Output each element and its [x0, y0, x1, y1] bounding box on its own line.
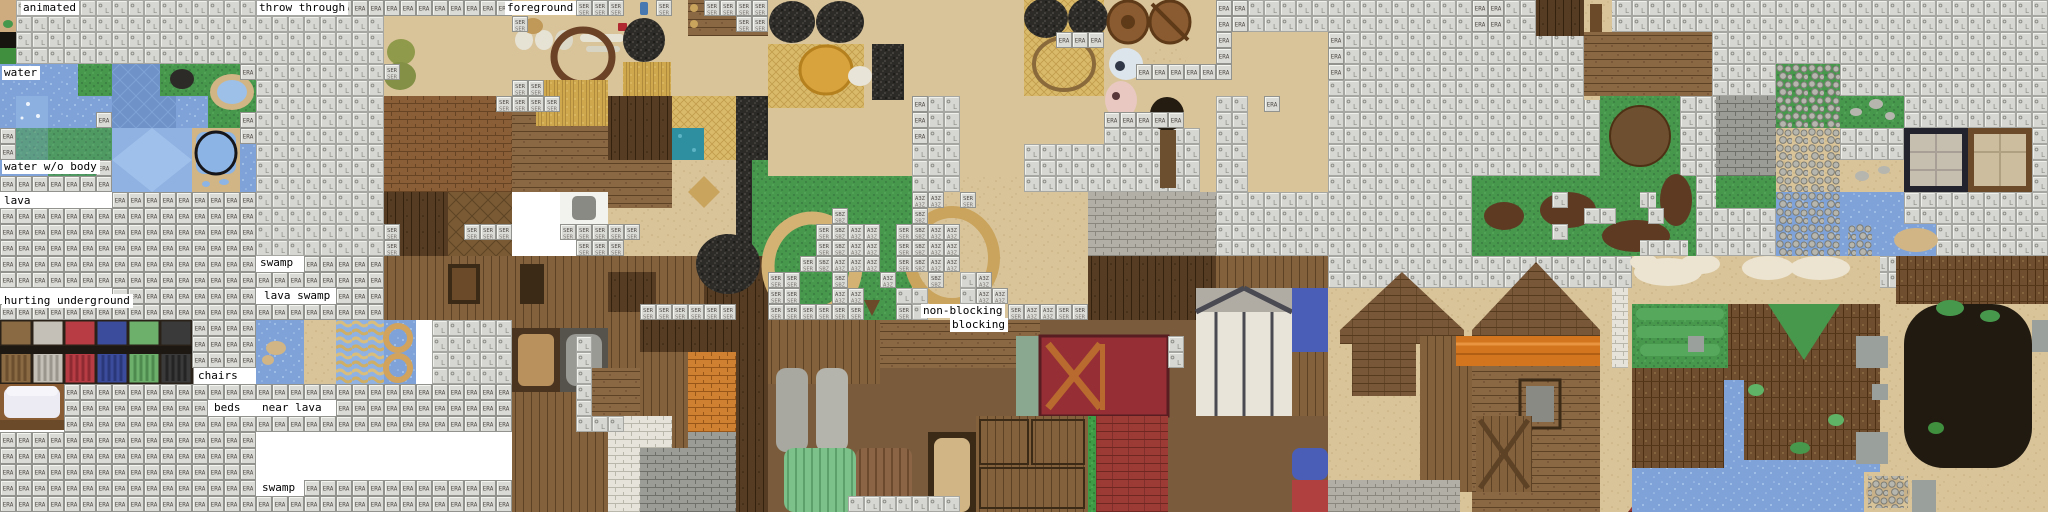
empty-tile-area[interactable]	[1344, 0, 1472, 192]
art-blob	[1680, 254, 1720, 274]
empty-tile-area[interactable]	[1552, 192, 1568, 208]
art-rect	[1632, 368, 1728, 468]
art-rect	[0, 32, 16, 48]
art-blob	[202, 181, 210, 187]
art-blob	[816, 1, 864, 43]
art-rect	[520, 264, 544, 304]
tile-badge-ERA[interactable]	[192, 320, 256, 368]
art-blob	[1742, 256, 1794, 280]
art-blob	[696, 234, 760, 294]
label-chairs: chairs	[196, 369, 241, 383]
chair-seat	[96, 352, 128, 384]
chair-seat	[64, 352, 96, 384]
label-swamp-lower: swamp	[260, 481, 298, 495]
tile-badge-A3Z[interactable]	[976, 288, 1008, 304]
tile-badge-ERA[interactable]	[1184, 64, 1216, 80]
tile-badge-ERA[interactable]	[912, 96, 928, 144]
tile-badge-ERA[interactable]	[336, 288, 384, 304]
art-rect	[1536, 0, 1584, 36]
tile-badge-SER[interactable]	[656, 0, 672, 16]
tile-badge-SER[interactable]	[736, 0, 768, 32]
label-blocking: blocking	[950, 318, 1008, 332]
label-water: water	[2, 66, 40, 80]
art-rect	[78, 64, 112, 96]
tile-badge-ERA[interactable]	[112, 192, 256, 208]
art-blob	[692, 148, 696, 152]
art-rect	[1868, 476, 1908, 508]
tile-badge-SBZ[interactable]	[912, 224, 928, 272]
tile-badge-ERA[interactable]	[96, 112, 112, 128]
chair-seat	[160, 352, 192, 384]
empty-tile-area[interactable]	[256, 64, 384, 256]
art-rect	[304, 320, 336, 384]
tile-badge-SER[interactable]	[560, 224, 640, 240]
tile-badge-ERA[interactable]	[1472, 0, 1504, 32]
tile-badge-ERA[interactable]	[256, 272, 384, 288]
art-blob	[1748, 384, 1764, 396]
tile-badge-ERA[interactable]	[336, 400, 384, 416]
art-blob	[690, 20, 698, 28]
art-blob	[1936, 300, 1964, 316]
art-rect	[1872, 384, 1888, 400]
art-rect	[1904, 304, 2032, 468]
art-rect	[736, 320, 768, 512]
art-blob	[678, 134, 682, 138]
art-blob	[1869, 99, 1883, 109]
art-blob	[21, 117, 24, 120]
art-blob	[1894, 228, 1938, 252]
art-rect	[704, 96, 736, 160]
tile-badge-SER[interactable]	[768, 304, 864, 320]
tile-badge-ERA[interactable]	[0, 176, 112, 192]
tile-badge-SER[interactable]	[896, 304, 912, 320]
tile-badge-A3Z[interactable]	[944, 256, 960, 272]
art-rect	[1456, 336, 1600, 366]
art-blob	[1630, 254, 1658, 270]
art-rect	[1896, 256, 2048, 304]
label-hurting-underground: hurting underground	[2, 294, 133, 308]
tile-badge-ERA[interactable]	[304, 256, 384, 272]
art-rect	[1292, 288, 1328, 352]
art-blob	[848, 66, 872, 86]
tile-badge-ERA[interactable]	[384, 480, 512, 512]
tile-badge-ERA[interactable]	[240, 64, 256, 80]
art-rect	[1016, 336, 1040, 416]
chair-seat	[0, 352, 32, 384]
tile-badge-SBZ[interactable]	[832, 272, 848, 288]
tile-badge-ERA[interactable]	[64, 384, 256, 400]
empty-tile-area[interactable]	[1648, 208, 1664, 224]
label-beds: beds	[212, 401, 244, 415]
empty-tile-area[interactable]	[432, 320, 512, 384]
tile-badge-SER[interactable]	[464, 224, 512, 240]
tile-badge-ERA[interactable]	[304, 480, 384, 496]
tile-badge-A3Z[interactable]	[832, 288, 864, 304]
empty-tile-area[interactable]	[1696, 240, 1728, 256]
tile-badge-ERA[interactable]	[0, 208, 256, 288]
chair-back	[96, 320, 128, 346]
tileset-sheet[interactable]: L	[0, 0, 2048, 512]
chair-back	[160, 320, 192, 346]
art-rect	[1856, 432, 1888, 464]
empty-tile-area[interactable]	[16, 16, 384, 64]
art-rect	[623, 62, 671, 96]
tile-badge-SER[interactable]	[768, 288, 800, 304]
art-rect	[1292, 352, 1328, 416]
tile-badge-A3Z[interactable]	[848, 224, 880, 272]
label-throw-through: throw through	[257, 1, 348, 15]
tile-badge-SER[interactable]	[384, 224, 400, 256]
art-rect	[1196, 288, 1292, 312]
art-blob	[170, 69, 194, 89]
tile-badge-A3Z[interactable]	[832, 256, 848, 272]
label-water-wo-body: water w/o body	[2, 160, 100, 174]
art-blob	[1828, 414, 1844, 426]
tile-badge-SER[interactable]	[576, 0, 592, 16]
tile-badge-SER[interactable]	[576, 240, 624, 256]
art-blob	[26, 102, 30, 106]
art-blob	[266, 341, 286, 355]
art-blob	[36, 114, 40, 118]
tile-badge-ERA[interactable]	[1264, 96, 1280, 112]
tile-badge-ERA[interactable]	[256, 384, 384, 400]
tile-badge-ERA[interactable]	[1328, 32, 1344, 80]
tile-badge-ERA[interactable]	[1056, 32, 1104, 48]
tile-badge-SBZ[interactable]	[912, 208, 928, 224]
tile-badge-SER[interactable]	[1056, 304, 1088, 320]
art-blob	[769, 1, 815, 43]
art-blob	[387, 39, 415, 65]
empty-tile-area[interactable]	[1328, 256, 1536, 288]
empty-tile-area[interactable]	[1024, 144, 1104, 192]
art-rect	[1840, 160, 1904, 192]
art-blob	[1855, 171, 1869, 181]
tile-badge-SER[interactable]	[640, 304, 736, 320]
art-blob	[1121, 15, 1135, 29]
tile-badge-ERA[interactable]	[0, 432, 256, 512]
art-blob	[3, 20, 13, 28]
art-rect	[672, 96, 704, 128]
art-rect	[1584, 32, 1712, 96]
art-rect	[688, 352, 736, 432]
tile-badge-SBZ[interactable]	[816, 256, 832, 272]
art-rect	[2032, 320, 2048, 352]
art-rect	[1612, 288, 1628, 368]
art-rect	[1292, 480, 1328, 512]
tile-badge-ERA[interactable]	[384, 384, 512, 432]
art-rect	[608, 160, 672, 208]
empty-tile-area[interactable]	[1584, 208, 1616, 224]
art-rect	[1292, 448, 1328, 480]
tile-badge-ERA[interactable]	[112, 288, 256, 304]
tile-badge-ERA[interactable]	[1216, 32, 1232, 80]
label-animated: animated	[21, 1, 79, 15]
art-rect	[1640, 344, 1720, 356]
art-rect	[816, 368, 848, 452]
tile-badge-SER[interactable]	[960, 192, 976, 208]
art-rect	[1352, 344, 1416, 396]
tile-badge-SER[interactable]	[896, 224, 912, 272]
label-non-blocking: non-blocking	[921, 304, 1005, 318]
tile-badge-ERA[interactable]	[1136, 64, 1184, 80]
art-blob	[1980, 310, 2000, 322]
art-rect	[672, 128, 704, 160]
tile-badge-SER[interactable]	[384, 64, 400, 80]
chair-back	[64, 320, 96, 346]
tile-badge-ERA[interactable]	[336, 0, 512, 16]
chair-back	[0, 320, 32, 346]
chair-back	[32, 320, 64, 346]
art-rect	[1636, 326, 1724, 338]
art-rect	[1856, 336, 1888, 368]
art-blob	[1112, 92, 1120, 100]
art-rect	[192, 176, 240, 192]
art-rect	[784, 448, 856, 512]
art-rect	[872, 44, 904, 100]
art-rect	[1728, 460, 1880, 512]
art-rect	[0, 0, 16, 16]
empty-tile-area[interactable]	[1216, 96, 1248, 192]
empty-tile-area[interactable]	[576, 416, 624, 432]
tile-badge-ERA[interactable]	[256, 304, 384, 320]
art-blob	[262, 355, 274, 365]
tile-badge-A3Z[interactable]	[976, 272, 992, 288]
art-rect	[1632, 468, 1728, 512]
tile-badge-ERA[interactable]	[256, 416, 384, 432]
art-blob	[623, 18, 665, 62]
art-blob	[1115, 61, 1125, 71]
empty-tile-area[interactable]	[1168, 336, 1184, 368]
art-blob	[219, 179, 229, 185]
art-rect	[1160, 130, 1176, 188]
label-lava: lava	[2, 194, 34, 208]
tileset-art: L	[0, 0, 2048, 512]
art-rect	[0, 346, 192, 354]
tile-badge-ERA[interactable]	[64, 400, 208, 416]
tile-badge-ERA[interactable]	[240, 128, 256, 144]
art-rect	[16, 96, 48, 128]
tile-badge-SBZ[interactable]	[928, 272, 944, 288]
empty-tile-area[interactable]	[1640, 240, 1688, 256]
tile-badge-ERA[interactable]	[64, 416, 256, 432]
art-rect	[776, 368, 808, 452]
tile-badge-A3Z[interactable]	[912, 192, 944, 208]
art-blob	[1484, 202, 1524, 230]
art-blob	[690, 4, 698, 12]
empty-tile-area[interactable]	[1472, 32, 1536, 192]
art-rect	[1636, 308, 1724, 320]
art-rect	[1776, 64, 1840, 128]
art-rect	[1716, 176, 1776, 208]
art-blob	[1885, 112, 1895, 120]
label-near-lava: near lava	[260, 401, 325, 415]
art-rect	[1776, 128, 1840, 192]
tile-badge-ERA[interactable]	[1216, 0, 1248, 32]
tile-badge-SER[interactable]	[1008, 304, 1024, 320]
art-rect	[1688, 336, 1704, 352]
tile-badge-SER[interactable]	[768, 272, 784, 288]
empty-tile-area[interactable]	[1552, 224, 1568, 240]
art-rect	[752, 160, 768, 256]
art-rect	[640, 2, 648, 15]
tile-badge-ERA[interactable]	[256, 496, 384, 512]
art-rect	[1096, 416, 1168, 512]
label-lava-swamp: lava swamp	[262, 289, 333, 303]
tile-badge-SER[interactable]	[512, 80, 544, 96]
label-swamp-upper: swamp	[258, 256, 296, 270]
tile-badge-ERA[interactable]	[240, 112, 256, 128]
art-rect	[336, 320, 384, 384]
art-blob	[1850, 108, 1862, 116]
art-blob	[1790, 256, 1850, 280]
chair-back	[128, 320, 160, 346]
art-blob	[1878, 166, 1890, 174]
art-rect	[608, 96, 672, 160]
art-rect	[0, 48, 16, 64]
tile-badge-A3Z[interactable]	[880, 272, 896, 288]
art-rect	[1328, 480, 1460, 512]
art-rect	[1216, 256, 1328, 288]
art-rect	[1100, 344, 1105, 410]
tile-badge-SER[interactable]	[592, 0, 624, 16]
art-rect	[1088, 192, 1216, 256]
tile-badge-SER[interactable]	[512, 16, 528, 32]
chair-seat	[32, 352, 64, 384]
chair-seat	[128, 352, 160, 384]
art-rect	[688, 432, 736, 512]
tile-badge-ERA[interactable]	[0, 128, 16, 160]
art-blob	[1928, 422, 1944, 434]
art-rect	[518, 334, 554, 386]
empty-tile-area[interactable]	[576, 336, 592, 416]
tile-badge-ERA[interactable]	[1104, 112, 1184, 128]
label-foreground: foreground	[505, 1, 576, 15]
art-blob	[217, 80, 247, 104]
art-blob	[1790, 442, 1810, 454]
tile-badge-SER[interactable]	[800, 256, 816, 272]
tile-badge-SER[interactable]	[496, 96, 560, 112]
art-rect	[16, 128, 48, 160]
empty-tile-area[interactable]	[1104, 128, 1200, 192]
art-rect	[572, 196, 596, 220]
art-rect	[452, 268, 476, 300]
art-rect	[6, 386, 58, 396]
art-rect	[0, 420, 64, 430]
art-rect	[1776, 192, 1840, 256]
art-blob	[1660, 174, 1692, 226]
empty-tile-area[interactable]	[1640, 192, 1656, 208]
tile-badge-A3Z[interactable]	[1024, 304, 1056, 320]
empty-tile-area[interactable]	[848, 496, 960, 512]
